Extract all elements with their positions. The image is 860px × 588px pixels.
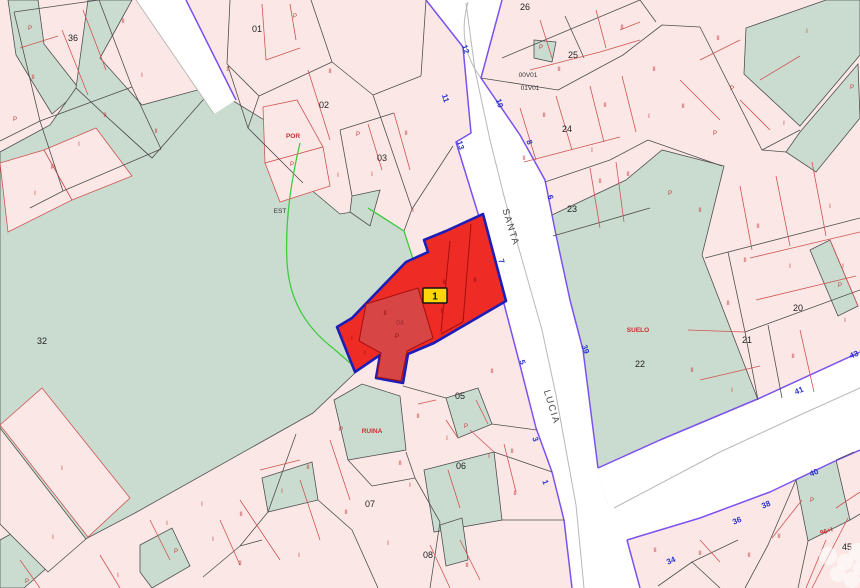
construction-annotation: II bbox=[716, 36, 720, 42]
construction-annotation: II bbox=[653, 548, 657, 554]
construction-annotation: II bbox=[620, 25, 624, 31]
construction-annotation: II bbox=[383, 311, 387, 317]
parcel-number-label: 32 bbox=[37, 336, 47, 346]
subparcel-code-label: 04 bbox=[396, 320, 404, 327]
construction-annotation: II bbox=[743, 258, 747, 264]
parcel-number-label: 08 bbox=[423, 550, 433, 560]
construction-annotation: II bbox=[154, 129, 158, 135]
construction-annotation: II bbox=[490, 369, 494, 375]
construction-annotation: II bbox=[542, 113, 546, 119]
parcel-number-label: 26 bbox=[520, 2, 530, 12]
construction-annotation: II bbox=[777, 534, 781, 540]
construction-annotation: II bbox=[510, 449, 514, 455]
parcel-number-label: 25 bbox=[568, 50, 578, 60]
construction-annotation: II bbox=[398, 461, 402, 467]
construction-annotation: II bbox=[513, 491, 517, 497]
parcel-badge-label: 1 bbox=[432, 292, 438, 303]
cadastral-map[interactable]: 04 1 SANTA LUCIA 36010203262524232221203… bbox=[0, 0, 860, 588]
special-use-label: RUINA bbox=[362, 428, 383, 435]
construction-annotation: P bbox=[810, 498, 814, 504]
construction-annotation: II bbox=[690, 368, 694, 374]
construction-annotation: II bbox=[442, 280, 446, 286]
construction-annotation: II bbox=[726, 301, 730, 307]
construction-annotation: P bbox=[339, 427, 343, 433]
construction-annotation: II bbox=[465, 563, 469, 569]
construction-annotation: P bbox=[356, 132, 360, 138]
parcel-number-label: 02 bbox=[319, 100, 329, 110]
parcel-number-label: 07 bbox=[365, 499, 375, 509]
parcel-number-label: 36 bbox=[68, 33, 78, 43]
construction-annotation: II bbox=[473, 278, 477, 284]
construction-annotation: II bbox=[238, 561, 242, 567]
construction-annotation: II bbox=[226, 67, 230, 73]
construction-annotation: P bbox=[730, 86, 734, 92]
parcel-number-label: 03 bbox=[377, 153, 387, 163]
map-viewport[interactable]: 04 1 SANTA LUCIA 36010203262524232221203… bbox=[0, 0, 860, 588]
construction-annotation: II bbox=[603, 103, 607, 109]
construction-annotation: II bbox=[598, 179, 602, 185]
construction-annotation: II bbox=[756, 224, 760, 230]
construction-annotation: P bbox=[290, 162, 294, 168]
map-code-label: 01V01 bbox=[521, 85, 540, 92]
construction-annotation: P bbox=[174, 549, 178, 555]
parcel-number-label: 01 bbox=[252, 24, 262, 34]
parcel-number-label: 24 bbox=[562, 124, 572, 134]
construction-annotation: P bbox=[293, 14, 297, 20]
construction-annotation: P bbox=[51, 165, 55, 171]
construction-annotation: P bbox=[13, 117, 17, 123]
construction-annotation: II bbox=[121, 19, 125, 25]
parcel-number-label: 21 bbox=[742, 335, 752, 345]
construction-annotation: P bbox=[464, 424, 468, 430]
map-code-label: 00V01 bbox=[519, 72, 538, 79]
construction-annotation: P bbox=[25, 579, 29, 585]
special-use-label: POR bbox=[286, 133, 300, 140]
construction-annotation: II bbox=[652, 67, 656, 73]
construction-annotation: P bbox=[28, 26, 32, 32]
construction-annotation: II bbox=[557, 67, 561, 73]
construction-annotation: P bbox=[713, 131, 717, 137]
construction-annotation: II bbox=[522, 156, 526, 162]
construction-annotation: II bbox=[344, 510, 348, 516]
construction-annotation: II bbox=[239, 512, 243, 518]
construction-annotation: II bbox=[791, 354, 795, 360]
construction-annotation: II bbox=[747, 553, 751, 559]
construction-annotation: II bbox=[440, 309, 444, 315]
parcel-number-label: 06 bbox=[456, 461, 466, 471]
construction-annotation: II bbox=[404, 131, 408, 137]
construction-annotation: II bbox=[31, 75, 35, 81]
construction-annotation: II bbox=[681, 104, 685, 110]
construction-annotation: P bbox=[395, 334, 399, 340]
construction-annotation: II bbox=[626, 172, 630, 178]
construction-annotation: II bbox=[328, 69, 332, 75]
construction-annotation: II bbox=[698, 551, 702, 557]
construction-annotation: P bbox=[838, 283, 842, 289]
construction-annotation: II bbox=[416, 414, 420, 420]
parcel-number-label: 05 bbox=[455, 391, 465, 401]
parcel-number-label: 20 bbox=[793, 303, 803, 313]
construction-annotation: II bbox=[103, 113, 107, 119]
construction-annotation: P bbox=[850, 85, 854, 91]
construction-annotation: II bbox=[698, 208, 702, 214]
parcel-number-label: 23 bbox=[567, 204, 577, 214]
construction-annotation: II bbox=[306, 465, 310, 471]
construction-annotation: P bbox=[539, 45, 543, 51]
parcel-number-label: 22 bbox=[635, 359, 645, 369]
construction-annotation: P bbox=[668, 191, 672, 197]
map-code-label: EST bbox=[274, 208, 287, 215]
special-use-label: SUELO bbox=[627, 327, 649, 334]
